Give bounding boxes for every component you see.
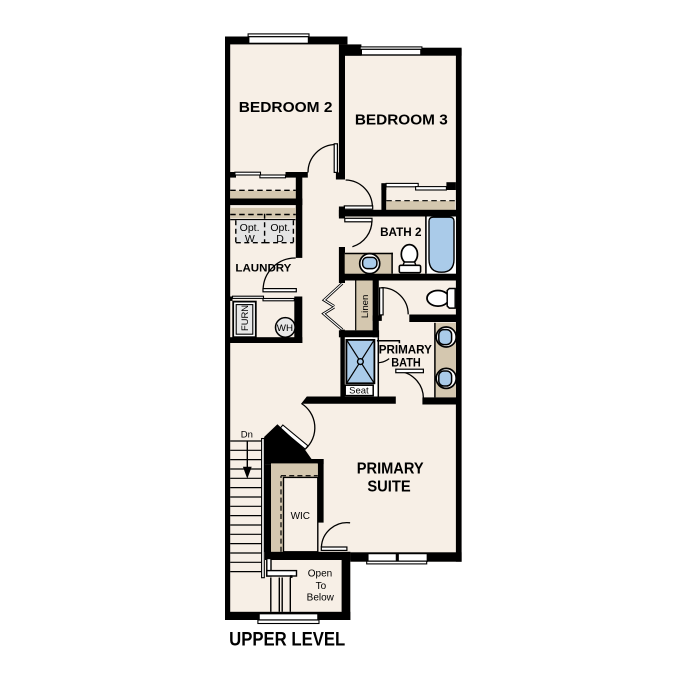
svg-text:Seat: Seat xyxy=(349,386,369,397)
svg-text:W: W xyxy=(245,233,255,245)
svg-text:Dn: Dn xyxy=(241,430,253,441)
svg-text:BATH: BATH xyxy=(391,356,421,370)
svg-text:UPPER LEVEL: UPPER LEVEL xyxy=(229,629,345,651)
svg-text:PRIMARY: PRIMARY xyxy=(379,342,432,356)
svg-text:WH: WH xyxy=(277,323,293,334)
svg-text:To: To xyxy=(316,581,327,592)
svg-text:Below: Below xyxy=(307,593,335,604)
svg-text:BATH 2: BATH 2 xyxy=(380,225,422,239)
svg-text:SUITE: SUITE xyxy=(367,479,410,496)
svg-text:Open: Open xyxy=(308,569,332,580)
svg-text:BEDROOM 2: BEDROOM 2 xyxy=(239,100,333,116)
svg-text:FURN: FURN xyxy=(239,305,250,331)
svg-text:WIC: WIC xyxy=(291,511,310,522)
svg-text:PRIMARY: PRIMARY xyxy=(357,461,424,478)
svg-text:LAUNDRY: LAUNDRY xyxy=(235,263,291,275)
svg-text:BEDROOM 3: BEDROOM 3 xyxy=(355,112,448,128)
svg-text:Linen: Linen xyxy=(360,295,371,318)
svg-text:D: D xyxy=(276,233,284,245)
